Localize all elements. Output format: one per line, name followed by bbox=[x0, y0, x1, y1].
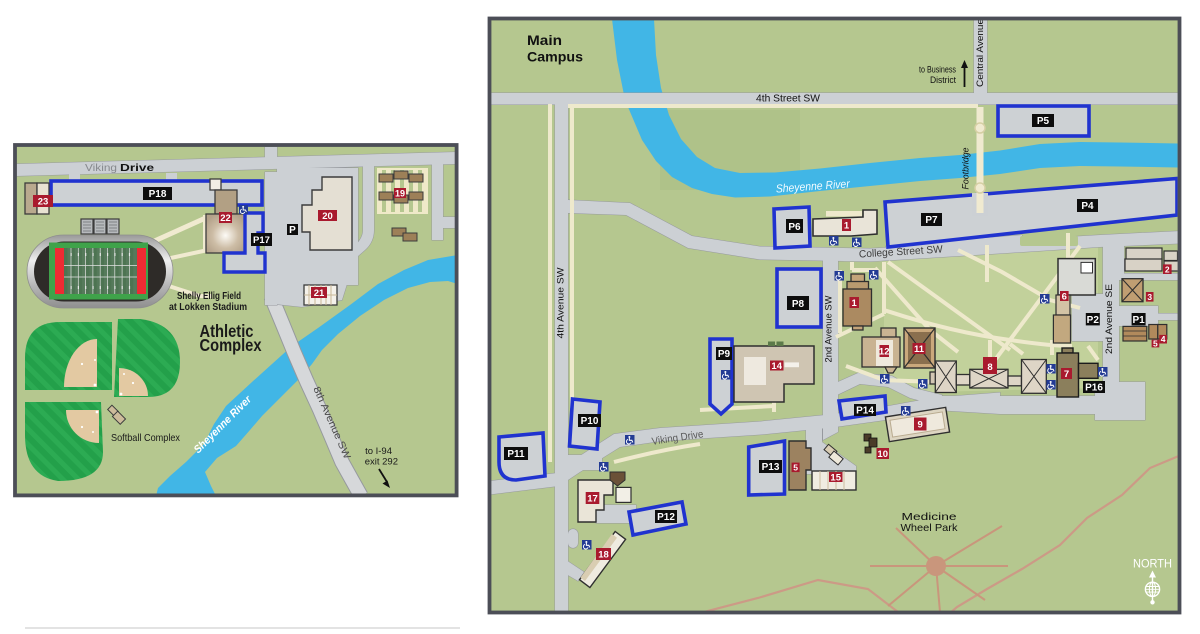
svg-text:Main: Main bbox=[527, 32, 562, 48]
svg-text:17: 17 bbox=[587, 494, 598, 505]
svg-text:P7: P7 bbox=[925, 215, 938, 226]
svg-text:Viking: Viking bbox=[85, 163, 117, 174]
svg-text:21: 21 bbox=[314, 288, 325, 299]
svg-text:22: 22 bbox=[220, 213, 231, 224]
svg-text:9: 9 bbox=[918, 420, 923, 431]
svg-text:15: 15 bbox=[830, 473, 841, 484]
svg-text:P5: P5 bbox=[1037, 116, 1050, 127]
svg-text:12: 12 bbox=[879, 347, 890, 358]
svg-text:P17: P17 bbox=[253, 235, 270, 246]
svg-text:NORTH: NORTH bbox=[1133, 559, 1172, 571]
svg-text:to Business: to Business bbox=[919, 65, 956, 75]
svg-text:4: 4 bbox=[1161, 334, 1166, 344]
svg-text:8: 8 bbox=[987, 362, 992, 373]
svg-text:3: 3 bbox=[1147, 292, 1152, 302]
svg-text:at Lokken Stadium: at Lokken Stadium bbox=[169, 301, 247, 313]
svg-text:Campus: Campus bbox=[527, 49, 583, 65]
svg-text:4th Street SW: 4th Street SW bbox=[756, 94, 821, 105]
svg-text:P6: P6 bbox=[788, 222, 801, 233]
svg-text:P4: P4 bbox=[1081, 201, 1094, 212]
svg-text:P18: P18 bbox=[149, 189, 167, 200]
svg-text:P8: P8 bbox=[792, 299, 805, 310]
svg-text:10: 10 bbox=[877, 449, 888, 460]
svg-text:2nd Avenue SW: 2nd Avenue SW bbox=[824, 295, 835, 362]
svg-text:7: 7 bbox=[1064, 369, 1069, 380]
svg-text:20: 20 bbox=[322, 211, 333, 222]
svg-text:2: 2 bbox=[1165, 264, 1170, 274]
svg-text:11: 11 bbox=[914, 344, 925, 355]
svg-text:P16: P16 bbox=[1085, 383, 1103, 394]
svg-text:Wheel Park: Wheel Park bbox=[901, 522, 959, 534]
svg-text:5: 5 bbox=[1153, 338, 1158, 348]
svg-text:to I-94: to I-94 bbox=[365, 446, 392, 457]
svg-text:Central Avenue: Central Avenue bbox=[975, 19, 986, 87]
svg-text:P10: P10 bbox=[581, 416, 599, 427]
svg-text:exit 292: exit 292 bbox=[365, 457, 398, 468]
svg-text:19: 19 bbox=[395, 189, 405, 199]
svg-text:District: District bbox=[930, 75, 956, 85]
svg-text:6: 6 bbox=[1062, 292, 1067, 303]
svg-text:Softball Complex: Softball Complex bbox=[111, 432, 181, 444]
svg-text:Complex: Complex bbox=[200, 335, 262, 355]
svg-text:Footbridge: Footbridge bbox=[961, 148, 972, 190]
svg-text:P12: P12 bbox=[657, 512, 675, 523]
svg-text:Drive: Drive bbox=[120, 163, 155, 174]
svg-text:P9: P9 bbox=[718, 349, 731, 360]
svg-text:2nd Avenue SE: 2nd Avenue SE bbox=[1104, 284, 1115, 354]
svg-text:4th Avenue SW: 4th Avenue SW bbox=[556, 267, 567, 338]
svg-text:1: 1 bbox=[844, 221, 850, 232]
svg-text:14: 14 bbox=[771, 361, 782, 372]
svg-text:P2: P2 bbox=[1087, 315, 1100, 326]
svg-text:P: P bbox=[289, 225, 296, 236]
svg-text:5: 5 bbox=[793, 463, 798, 473]
svg-text:23: 23 bbox=[38, 197, 49, 208]
svg-text:P14: P14 bbox=[856, 406, 874, 417]
svg-text:P13: P13 bbox=[762, 462, 780, 473]
svg-text:1: 1 bbox=[852, 298, 858, 309]
svg-text:P1: P1 bbox=[1132, 315, 1145, 326]
svg-text:P11: P11 bbox=[507, 449, 525, 460]
svg-text:18: 18 bbox=[598, 550, 609, 561]
